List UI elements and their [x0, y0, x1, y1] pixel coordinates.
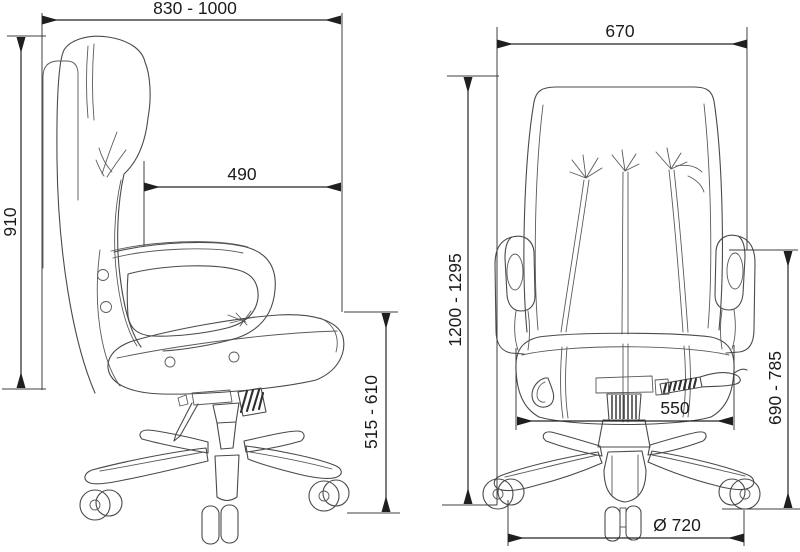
side-caster-center-wheel1: [202, 506, 219, 544]
dim-base-diameter-label: Ø 720: [653, 515, 701, 535]
side-back-screw-top: [98, 270, 109, 281]
dim-seat-height-label: 515 - 610: [361, 375, 381, 449]
dim-overall-depth-label: 830 - 1000: [153, 0, 237, 18]
side-headrest-creases: [96, 132, 126, 177]
front-tuft-seam-left: [561, 180, 589, 332]
chair-dimension-drawing: 830 - 1000 910 490 515 - 610 670 1200 - …: [0, 0, 800, 552]
side-seat-button-1: [165, 357, 175, 367]
front-mechanism-plate: [596, 376, 669, 395]
chair-front-view: [483, 87, 760, 541]
side-extension-lines: [2, 13, 400, 513]
dim-backrest-height-label: 910: [0, 207, 20, 236]
dim-seat-depth-label: 490: [227, 164, 256, 184]
dim-backrest-width-label: 670: [605, 21, 634, 41]
side-caster-center-wheel2: [221, 505, 238, 543]
side-caster-front-wheel2: [323, 480, 349, 506]
front-armrest-left-hole: [507, 254, 523, 290]
drawing-canvas: 830 - 1000 910 490 515 - 610 670 1200 - …: [0, 0, 800, 552]
front-caster-center-wheel1: [605, 507, 620, 541]
side-seat-cushion: [108, 315, 344, 394]
front-armrest-left-pad: [505, 236, 535, 311]
dim-armrest-height-label: 690 - 785: [765, 351, 785, 425]
front-lever-hook: [700, 369, 747, 387]
front-base-leg-left-ridge: [505, 455, 598, 477]
front-armrest-left-outer: [495, 237, 524, 354]
front-seat-seam-left: [561, 347, 568, 418]
front-lever-teardrop-inner: [537, 382, 545, 402]
side-seat-button-2: [229, 352, 239, 362]
side-caster-rear-wheel1: [80, 490, 110, 520]
front-armrest-right-pad: [715, 235, 745, 310]
front-armrest-right-outer: [726, 236, 755, 353]
side-view-dimensions: 830 - 1000 910 490 515 - 610: [0, 0, 400, 513]
front-base-leg-center: [604, 451, 646, 502]
side-base-leg-rear-ridge: [100, 452, 204, 471]
dim-overall-height-label: 1200 - 1295: [445, 253, 465, 346]
side-caster-front-hub: [319, 491, 329, 501]
front-base-leg-right: [648, 451, 754, 489]
front-tuft-crease-right: [676, 165, 704, 192]
front-tuft-seam-right: [669, 170, 688, 332]
side-seat-piping: [117, 331, 337, 358]
front-caster-center-axle: [620, 508, 626, 527]
side-knob-hatching: [241, 390, 263, 412]
side-backrest-front-seam: [115, 180, 137, 346]
front-tuft-star-right: [656, 148, 687, 169]
side-base-arm-upright: [244, 431, 304, 452]
front-armrest-right-hole: [727, 253, 743, 289]
side-base-leg-center: [215, 455, 239, 501]
front-tuft-seam-center: [622, 172, 628, 334]
front-armrest-right-support: [721, 310, 736, 349]
side-back-screw-bottom: [101, 302, 112, 313]
front-seat-piping: [522, 347, 729, 355]
chair-side-view: [43, 36, 349, 544]
side-base-leg-front: [246, 446, 341, 478]
front-caster-center-wheel2: [626, 506, 641, 540]
front-base-leg-right-ridge: [652, 455, 745, 476]
front-tuft-star-left: [570, 155, 602, 178]
side-armrest-outer: [114, 242, 275, 351]
side-gas-lift: [213, 403, 239, 449]
front-lever-teardrop: [532, 378, 554, 407]
front-gas-cylinder-ribs: [612, 395, 636, 419]
side-caster-rear-hub: [90, 500, 100, 510]
dim-seat-width-label: 550: [660, 398, 689, 418]
front-base-leg-center-seams: [612, 455, 638, 496]
side-armrest-hole: [127, 266, 258, 336]
side-base-leg-rear: [85, 448, 208, 484]
front-tuft-star-center: [612, 150, 639, 171]
side-seat-front-seam: [320, 318, 337, 352]
side-seat-creases: [228, 311, 254, 326]
side-caster-front-wheel1: [309, 481, 339, 511]
side-backrest-seam: [87, 44, 95, 120]
